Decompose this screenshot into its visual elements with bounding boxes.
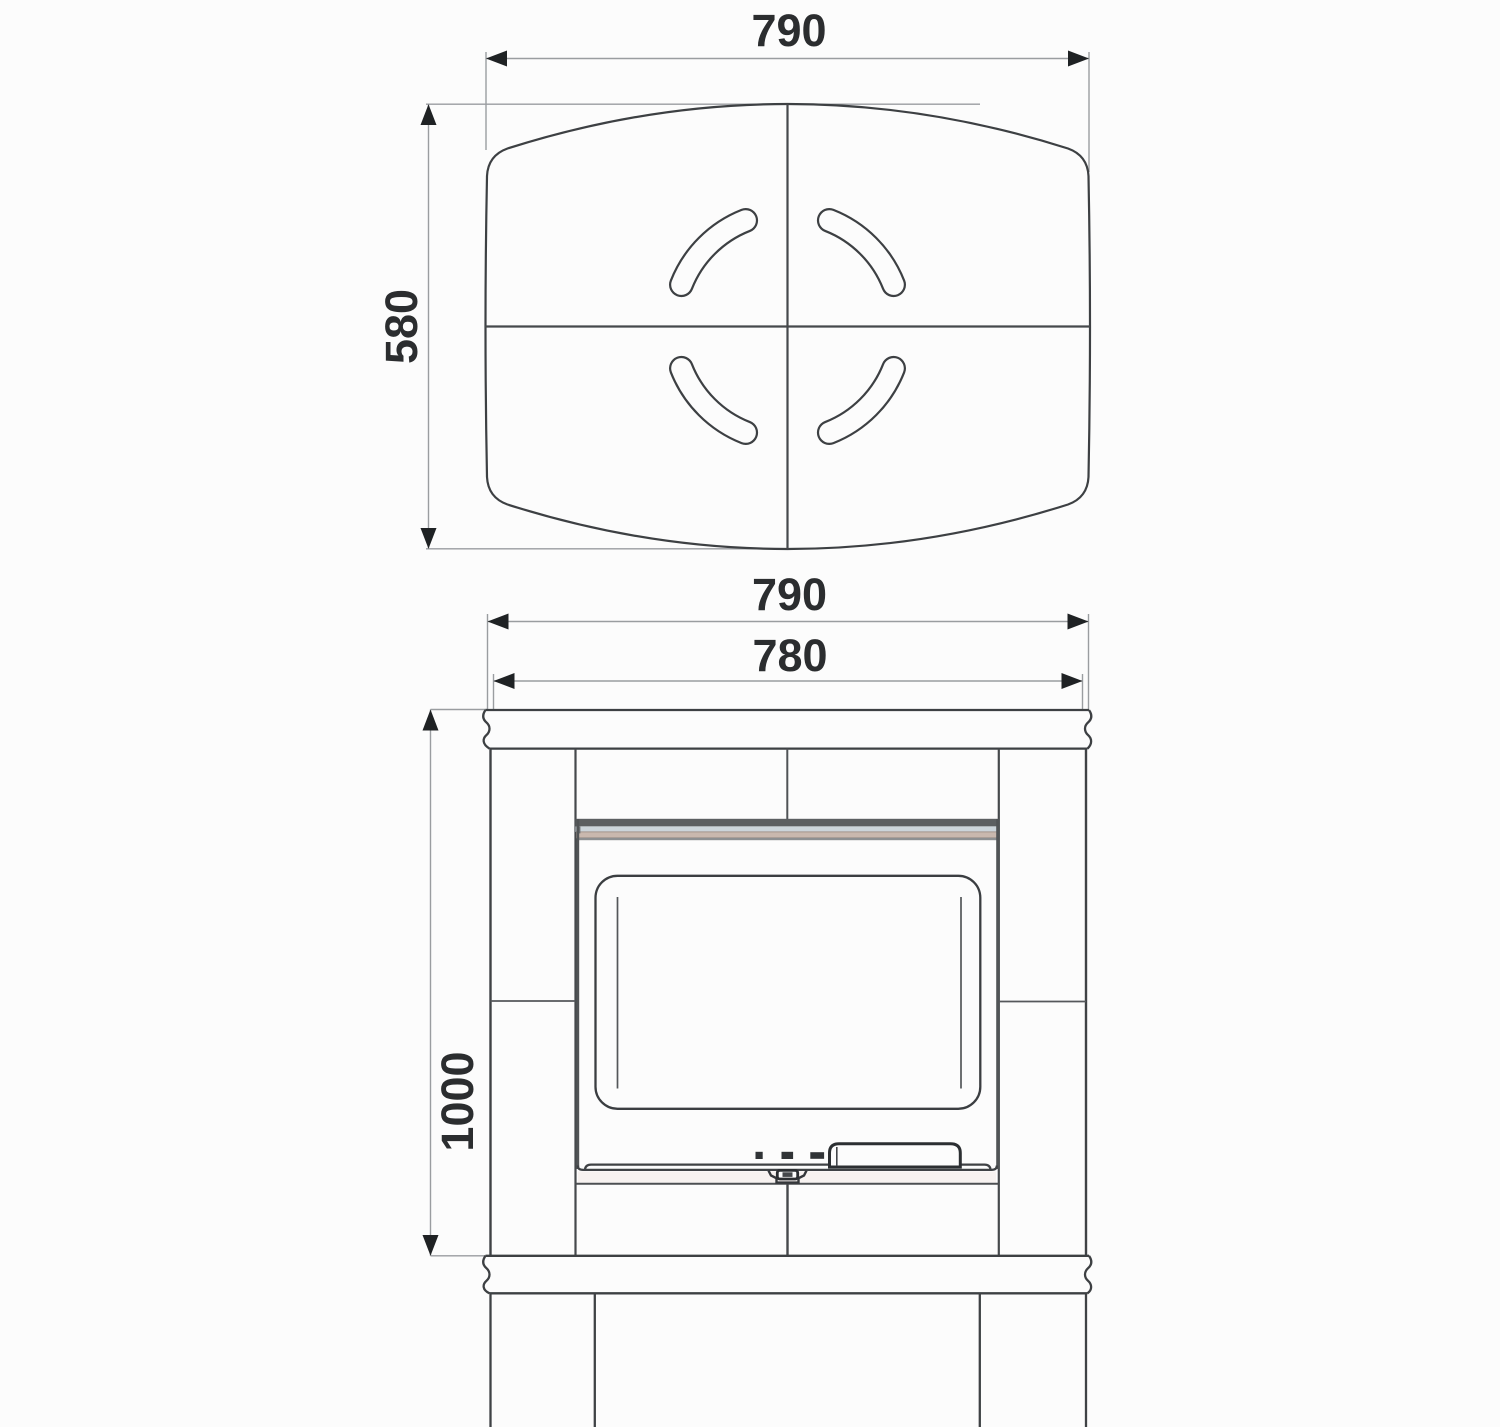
svg-text:790: 790 xyxy=(752,569,827,620)
svg-text:580: 580 xyxy=(376,289,427,364)
svg-text:1000: 1000 xyxy=(432,1051,483,1151)
svg-text:780: 780 xyxy=(752,630,827,681)
svg-text:790: 790 xyxy=(751,5,826,56)
